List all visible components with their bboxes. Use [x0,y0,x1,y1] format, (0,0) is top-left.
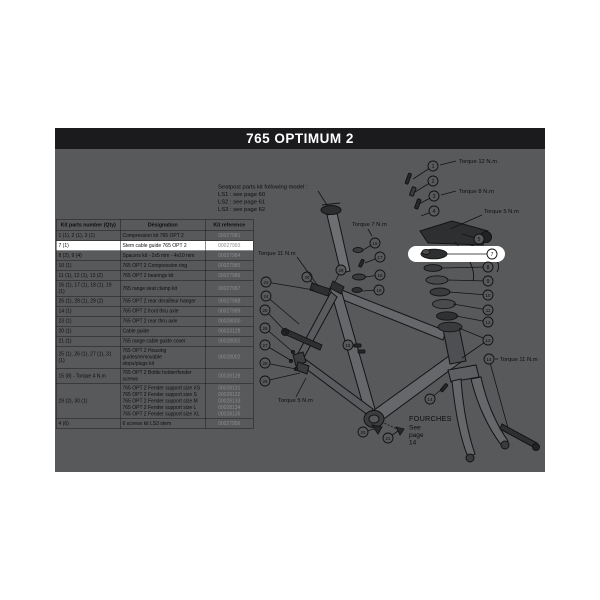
callout-number: 24 [264,294,269,299]
column-header-reference: Kit reference [205,219,253,231]
cell-reference: 00028000 [205,316,253,326]
torque-label: Torque 5 N.m [278,398,313,404]
torque-label: Torque 7 N.m [352,222,387,228]
table-row: 21 (1)765 range cable guide cover0002800… [56,336,253,346]
cell-reference: 00027989 [205,306,253,316]
seatpost [321,203,350,273]
cell-reference: 00027993 [205,241,253,251]
callout-number: 2 [432,179,435,185]
cell-parts: 26 (1), 28 (1), 29 (2) [56,296,120,306]
callout-number: 27 [263,343,268,348]
callout-number: 12 [486,320,491,325]
cell-reference: 00023128 [205,326,253,336]
callout-number: 15 [346,343,351,348]
callout-number: 29 [339,268,344,273]
table-row: 11 (1), 12 (1), 13 (2)765 OPT 2 bearings… [56,271,253,281]
callout-number: 23 [264,280,269,285]
table-row: 29 (2), 30 (1)765 OPT 2 Fender support s… [56,384,253,419]
cell-designation: 765 range cable guide cover [120,336,205,346]
table-row: 26 (1), 28 (1), 29 (2)765 OPT 2 rear der… [56,296,253,306]
cell-designation: 765 OPT 2 Fender support size XS765 OPT … [120,384,205,419]
cell-parts: 25 (1), 26 (1), 27 (1), 31 (1) [56,346,120,368]
cell-parts: 15 (8) - Torque 4 N.m [56,368,120,384]
cell-designation: 765 OPT 2 Housing guides/removablestops/… [120,346,205,368]
callout-number: 29 [263,379,268,384]
torque-label: Torque 5 N.m [484,209,519,215]
cell-designation: 765 OPT 2 bearings kit [120,271,205,281]
title-bar: 765 OPTIMUM 2 [55,128,545,149]
cell-parts: 10 (1) [56,261,120,271]
cell-parts: 23 (1) [56,316,120,326]
column-header-parts: Kit parts number (Qty) [56,219,120,231]
page-title: 765 OPTIMUM 2 [246,131,354,146]
callout-number: 5 [478,237,481,243]
seat-clamp-parts [352,248,366,293]
cell-reference: 00027985 [205,261,253,271]
cell-reference: 0002813100028132000281330002813400028135 [205,384,253,419]
catalog-page: 765 OPTIMUM 2 [0,0,600,600]
cell-designation: Cable guide [120,326,205,336]
column-header-designation: Désignation [120,219,205,231]
cell-parts: 11 (1), 12 (1), 13 (2) [56,271,120,281]
table-row: 4 (6)6 screws kit LS3 stem00027956 [56,419,253,429]
callout-number: 26 [263,326,268,331]
cell-reference: 00028002 [205,346,253,368]
table-header-row: Kit parts number (Qty) Désignation Kit r… [56,219,253,231]
callout-number: 13 [486,338,491,343]
torque-label: Torque 11 N.m [258,251,296,257]
cell-parts: 7 (1) [56,241,120,251]
table-row: 1 (1), 2 (1), 3 (1)Compression kit 765 O… [56,231,253,241]
table-row: 15 (8) - Torque 4 N.m765 OPT 2 Bottle ho… [56,368,253,384]
callout-number: 18 [378,273,383,278]
cell-reference: 00028001 [205,336,253,346]
parts-table: Kit parts number (Qty) Désignation Kit r… [56,219,254,429]
table-row: 14 (1)765 OPT 2 front thru axle00027989 [56,306,253,316]
table-row: 8 (2), 9 (4)Spacers kit - 2x5 mm - 4x10 … [56,251,253,261]
cell-designation: 765 OPT 2 rear thru axle [120,316,205,326]
cell-parts: 14 (1) [56,306,120,316]
table-row: 7 (1)Stem cable guide 765 OPT 200027993 [56,241,253,251]
diagram-panel: 1234578910111213141617181930292324252627… [55,149,545,472]
callout-number: 8 [487,265,490,271]
callout-number: 10 [486,293,491,298]
cell-designation: 765 range seat clamp kit [120,281,205,297]
table-row: 20 (1)Cable guide00023128 [56,326,253,336]
cell-parts: 1 (1), 2 (1), 3 (1) [56,231,120,241]
cell-reference: 00028128 [205,368,253,384]
cell-reference: 00027981 [205,231,253,241]
callout-number: 30 [305,275,310,280]
table-row: 10 (1)765 OPT 2 Compression ring00027985 [56,261,253,271]
cell-parts: 20 (1) [56,326,120,336]
cell-reference: 00027987 [205,281,253,297]
cell-reference: 00027984 [205,251,253,261]
torque-label: Torque 11 N.m [500,357,538,363]
callout-number: 3 [433,194,436,200]
cell-reference: 00027988 [205,296,253,306]
table-row: 25 (1), 26 (1), 27 (1), 31 (1)765 OPT 2 … [56,346,253,368]
callout-number: 14 [428,397,433,402]
callout-number: 11 [486,308,491,313]
callout-number: 25 [263,308,268,313]
cell-designation: Spacers kit - 2x5 mm - 4x10 mm [120,251,205,261]
cell-designation: 6 screws kit LS3 stem [120,419,205,429]
table-row: 23 (1)765 OPT 2 rear thru axle00028000 [56,316,253,326]
callout-number: 21 [386,436,391,441]
callout-number: 20 [361,430,366,435]
cell-parts: 8 (2), 9 (4) [56,251,120,261]
cell-parts: 16 (1), 17 (1), 18 (1), 19 (1) [56,281,120,297]
cell-reference: 00027956 [205,419,253,429]
callout-number: 16 [373,241,378,246]
cell-designation: 765 OPT 2 Bottle holder/fender screws [120,368,205,384]
callout-number: 9 [487,279,490,285]
callout-number: 19 [377,288,382,293]
cell-reference: 00027986 [205,271,253,281]
table-row: 16 (1), 17 (1), 18 (1), 19 (1)765 range … [56,281,253,297]
cell-designation: 765 OPT 2 Compression ring [120,261,205,271]
callout-number: 4 [433,209,436,215]
cell-designation: 765 OPT 2 rear derailleur hanger [120,296,205,306]
cell-designation: Compression kit 765 OPT 2 [120,231,205,241]
callout-number: 28 [263,361,268,366]
cell-parts: 29 (2), 30 (1) [56,384,120,419]
cell-designation: 765 OPT 2 front thru axle [120,306,205,316]
parts-table-body: 1 (1), 2 (1), 3 (1)Compression kit 765 O… [56,231,253,429]
torque-label: Torque 12 N.m [459,159,497,165]
cell-parts: 21 (1) [56,336,120,346]
callout-number: 14 [487,357,492,362]
cell-parts: 4 (6) [56,419,120,429]
callout-number: 17 [378,255,383,260]
torque-label: Torque 8 N.m [459,189,494,195]
callout-number: 1 [432,164,435,170]
cell-designation: Stem cable guide 765 OPT 2 [120,241,205,251]
callout-number: 7 [491,252,494,258]
fork [440,365,539,462]
